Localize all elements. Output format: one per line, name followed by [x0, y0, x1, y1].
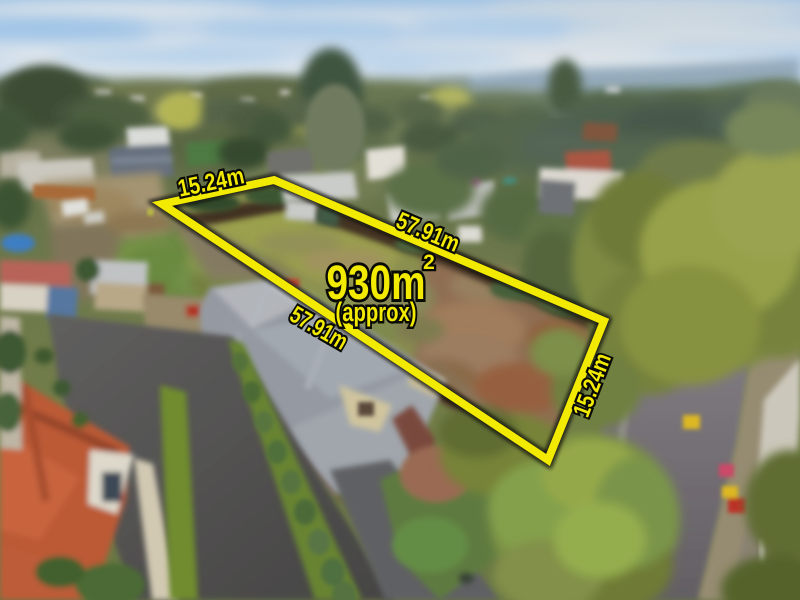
svg-text:2: 2 — [423, 251, 435, 274]
svg-text:(approx): (approx) — [336, 297, 417, 327]
